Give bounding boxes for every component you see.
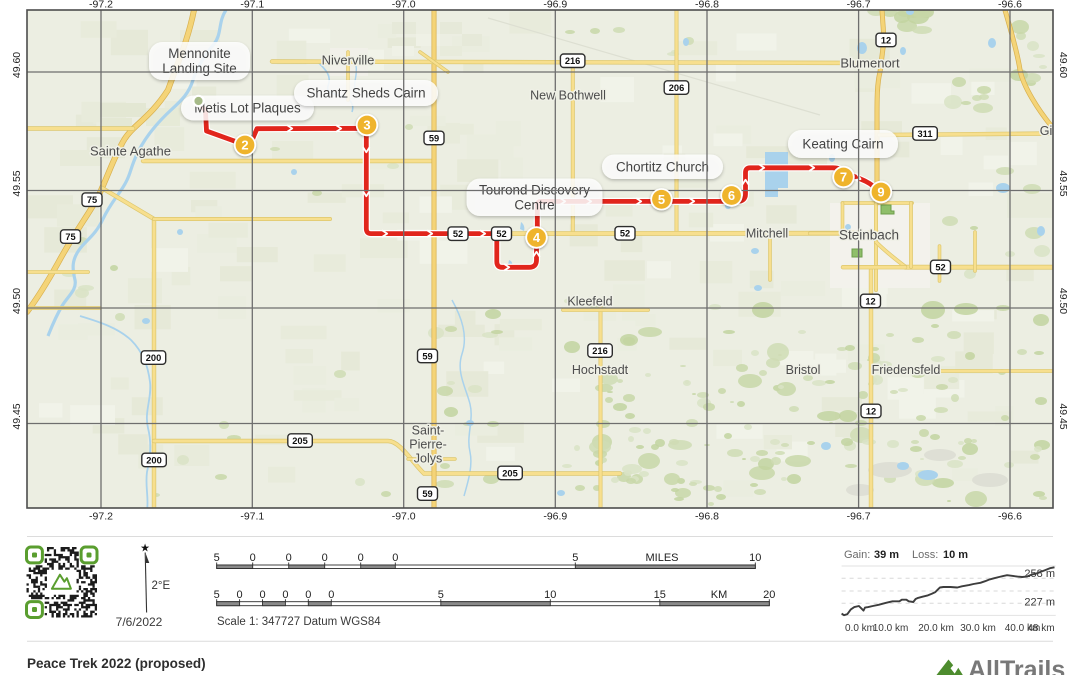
svg-text:0: 0 xyxy=(259,589,265,601)
svg-text:0: 0 xyxy=(237,589,243,601)
svg-text:Mennonite: Mennonite xyxy=(168,46,231,61)
svg-text:Friedensfeld: Friedensfeld xyxy=(872,363,941,377)
svg-text:59: 59 xyxy=(429,133,439,143)
svg-text:0: 0 xyxy=(322,552,328,564)
svg-text:Shantz Sheds Cairn: Shantz Sheds Cairn xyxy=(306,86,425,101)
svg-text:New Bothwell: New Bothwell xyxy=(530,89,606,103)
svg-text:9: 9 xyxy=(877,185,884,200)
svg-text:7/6/2022: 7/6/2022 xyxy=(116,615,163,629)
svg-text:3: 3 xyxy=(363,118,370,133)
svg-text:-96.6: -96.6 xyxy=(998,0,1022,11)
svg-text:2°E: 2°E xyxy=(152,580,171,592)
svg-text:49.55: 49.55 xyxy=(11,170,23,196)
svg-text:10: 10 xyxy=(749,552,761,564)
svg-text:4: 4 xyxy=(533,230,541,245)
svg-text:Loss:: Loss: xyxy=(912,549,938,561)
svg-text:Peace Trek 2022 (proposed): Peace Trek 2022 (proposed) xyxy=(27,656,206,671)
svg-text:Mitchell: Mitchell xyxy=(746,227,788,241)
svg-text:5: 5 xyxy=(214,589,220,601)
svg-text:Blumenort: Blumenort xyxy=(840,56,900,71)
svg-text:15: 15 xyxy=(654,589,666,601)
svg-text:Keating Cairn: Keating Cairn xyxy=(802,137,883,152)
svg-text:49.60: 49.60 xyxy=(11,52,23,78)
svg-text:5: 5 xyxy=(658,192,665,207)
svg-text:-96.6: -96.6 xyxy=(998,511,1022,523)
svg-text:10.0 km: 10.0 km xyxy=(873,623,909,634)
svg-text:0: 0 xyxy=(358,552,364,564)
svg-text:7: 7 xyxy=(840,170,847,185)
svg-text:52: 52 xyxy=(935,262,945,272)
svg-text:Kleefeld: Kleefeld xyxy=(567,295,612,309)
svg-text:49.50: 49.50 xyxy=(1057,288,1069,314)
svg-text:Gi: Gi xyxy=(1040,124,1053,138)
svg-text:49.60: 49.60 xyxy=(1057,52,1069,78)
svg-text:59: 59 xyxy=(422,351,432,361)
svg-text:75: 75 xyxy=(65,232,75,242)
svg-text:12: 12 xyxy=(865,296,875,306)
svg-text:258 m: 258 m xyxy=(1024,568,1055,580)
svg-text:10: 10 xyxy=(544,589,556,601)
svg-text:-97.0: -97.0 xyxy=(392,0,416,11)
svg-text:5: 5 xyxy=(214,552,220,564)
svg-text:5: 5 xyxy=(438,589,444,601)
svg-text:Scale 1: 347727 Datum WGS84: Scale 1: 347727 Datum WGS84 xyxy=(217,616,381,628)
svg-text:30.0 km: 30.0 km xyxy=(960,623,996,634)
svg-text:KM: KM xyxy=(711,589,728,601)
svg-text:59: 59 xyxy=(422,489,432,499)
svg-text:Bristol: Bristol xyxy=(786,363,821,377)
svg-text:-96.7: -96.7 xyxy=(847,511,871,523)
svg-text:227 m: 227 m xyxy=(1024,597,1055,609)
svg-text:-97.1: -97.1 xyxy=(240,511,264,523)
svg-text:Landing Site: Landing Site xyxy=(162,61,236,76)
svg-text:Pierre-: Pierre- xyxy=(409,438,447,452)
svg-text:Gain:: Gain: xyxy=(844,549,870,561)
svg-text:10 m: 10 m xyxy=(943,549,968,561)
svg-text:0: 0 xyxy=(392,552,398,564)
svg-text:Jolys: Jolys xyxy=(414,452,442,466)
svg-text:Centre: Centre xyxy=(514,197,554,212)
svg-text:20: 20 xyxy=(763,589,775,601)
svg-text:6: 6 xyxy=(728,188,735,203)
svg-text:Steinbach: Steinbach xyxy=(839,228,899,243)
svg-text:MILES: MILES xyxy=(645,552,678,564)
svg-text:0: 0 xyxy=(305,589,311,601)
svg-text:200: 200 xyxy=(146,455,162,465)
svg-text:49.55: 49.55 xyxy=(1057,170,1069,196)
svg-text:Niverville: Niverville xyxy=(322,53,375,68)
svg-text:-97.2: -97.2 xyxy=(89,0,113,11)
svg-text:-97.2: -97.2 xyxy=(89,511,113,523)
svg-text:Hochstadt: Hochstadt xyxy=(572,363,629,377)
svg-text:75: 75 xyxy=(87,195,97,205)
svg-text:216: 216 xyxy=(592,346,608,356)
svg-text:39 m: 39 m xyxy=(874,549,899,561)
svg-text:★: ★ xyxy=(140,543,150,555)
svg-text:Saint-: Saint- xyxy=(412,424,445,438)
svg-text:49.45: 49.45 xyxy=(1057,403,1069,429)
svg-text:12: 12 xyxy=(881,35,891,45)
svg-text:-97.1: -97.1 xyxy=(240,0,264,11)
svg-text:206: 206 xyxy=(669,83,685,93)
svg-text:0.0 km: 0.0 km xyxy=(845,623,875,634)
svg-text:0: 0 xyxy=(286,552,292,564)
svg-text:-97.0: -97.0 xyxy=(392,511,416,523)
svg-text:205: 205 xyxy=(502,468,518,478)
svg-text:-96.8: -96.8 xyxy=(695,511,719,523)
svg-text:48 km: 48 km xyxy=(1027,623,1054,634)
svg-text:52: 52 xyxy=(620,229,630,239)
svg-text:0: 0 xyxy=(328,589,334,601)
svg-text:5: 5 xyxy=(572,552,578,564)
svg-text:-96.7: -96.7 xyxy=(847,0,871,11)
svg-text:216: 216 xyxy=(565,56,581,66)
svg-text:Chortitz Church: Chortitz Church xyxy=(616,159,709,174)
svg-text:12: 12 xyxy=(866,406,876,416)
svg-text:200: 200 xyxy=(146,353,162,363)
svg-text:2: 2 xyxy=(241,138,248,153)
svg-text:49.45: 49.45 xyxy=(11,403,23,429)
svg-text:49.50: 49.50 xyxy=(11,288,23,314)
svg-text:AllTrails: AllTrails xyxy=(968,656,1065,675)
svg-text:311: 311 xyxy=(918,129,933,139)
svg-text:Metis Lot Plaques: Metis Lot Plaques xyxy=(194,101,301,116)
svg-text:20.0 km: 20.0 km xyxy=(918,623,954,634)
svg-text:-96.9: -96.9 xyxy=(543,511,567,523)
svg-text:-96.9: -96.9 xyxy=(543,0,567,11)
svg-text:Sainte Agathe: Sainte Agathe xyxy=(90,144,171,159)
svg-text:52: 52 xyxy=(496,229,506,239)
svg-text:-96.8: -96.8 xyxy=(695,0,719,11)
svg-text:0: 0 xyxy=(250,552,256,564)
svg-text:205: 205 xyxy=(292,436,308,446)
svg-text:0: 0 xyxy=(282,589,288,601)
svg-text:52: 52 xyxy=(453,229,463,239)
